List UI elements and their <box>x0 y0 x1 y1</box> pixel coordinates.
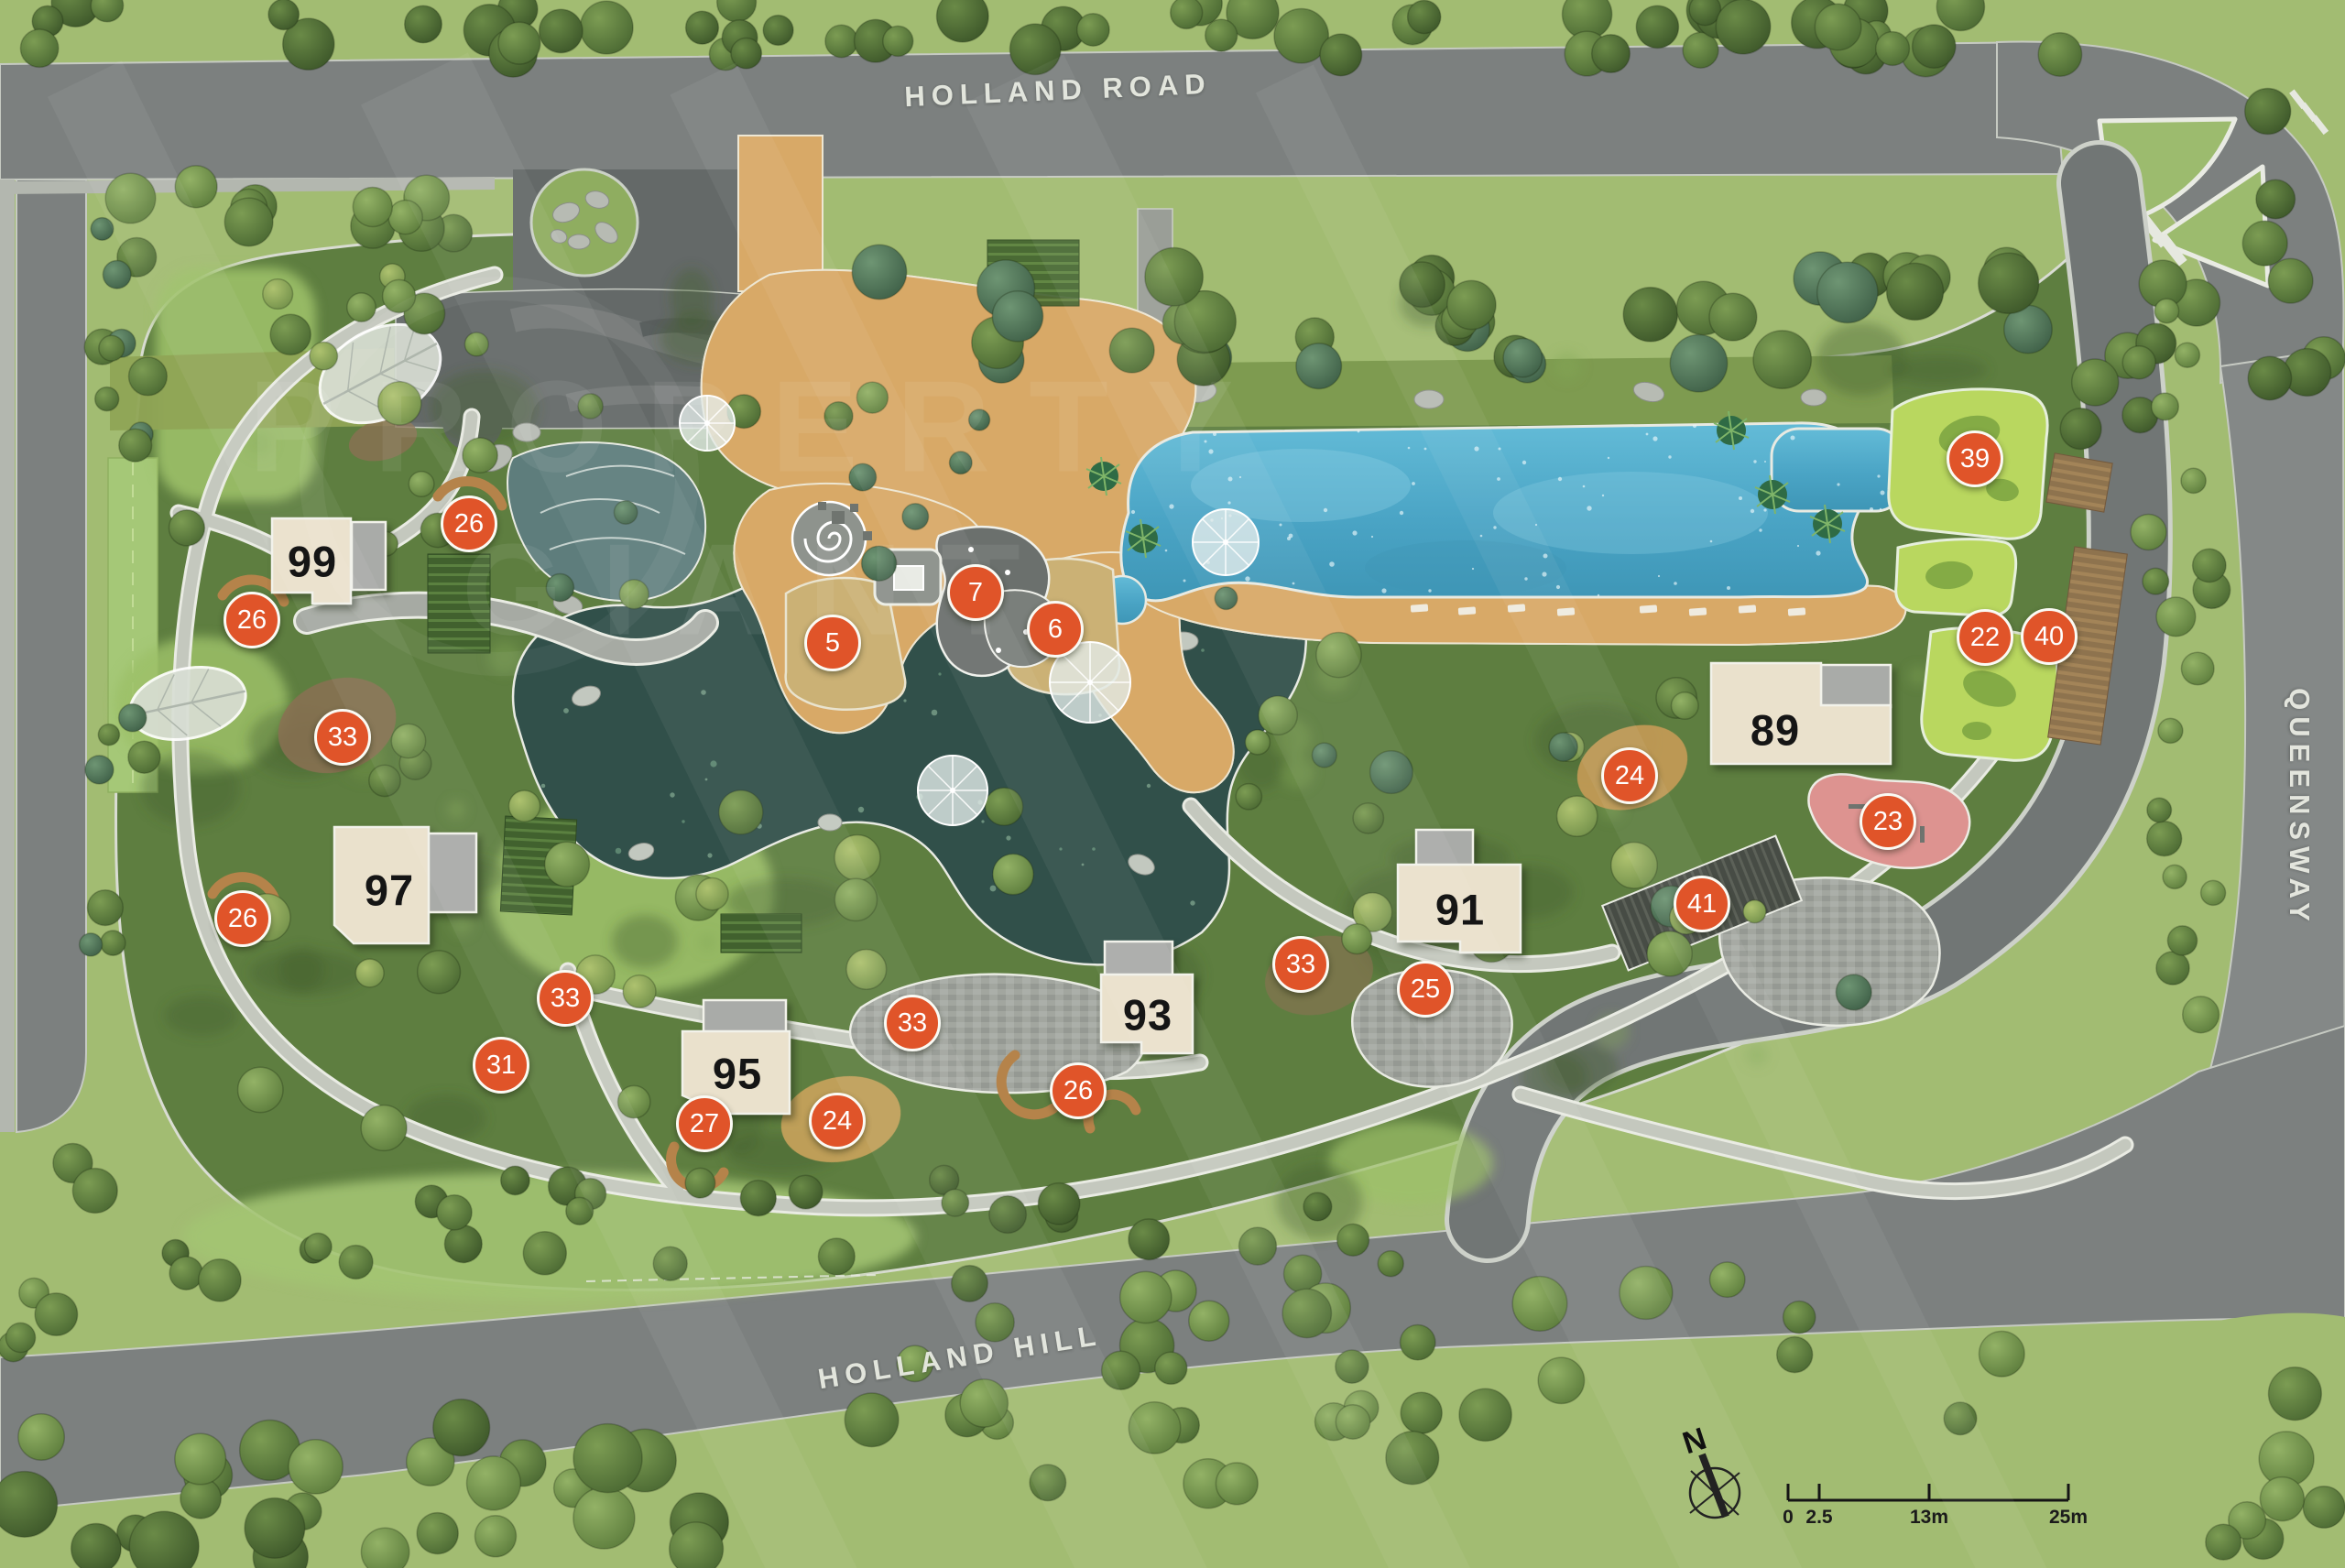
tree <box>1980 1332 2025 1377</box>
pool-sparkle <box>1797 545 1799 547</box>
tree <box>1710 1262 1745 1297</box>
tree <box>5 1323 35 1352</box>
legend-marker-number: 31 <box>486 1051 516 1081</box>
tree <box>238 1067 283 1112</box>
shrub-bed <box>612 915 678 968</box>
legend-marker-33: 33 <box>884 995 941 1051</box>
pool-sparkle <box>1764 461 1766 463</box>
pool-sparkle <box>1558 477 1562 481</box>
tree <box>1623 288 1677 342</box>
legend-marker-41: 41 <box>1674 876 1730 932</box>
tree <box>268 0 299 30</box>
pond-speckle <box>858 807 864 812</box>
tree <box>1753 331 1811 388</box>
tree <box>2303 1486 2345 1529</box>
legend-marker-number: 33 <box>898 1008 927 1039</box>
tree <box>353 188 392 227</box>
legend-marker-26: 26 <box>1050 1062 1107 1119</box>
tree <box>437 1195 472 1230</box>
tree <box>2147 798 2172 822</box>
tree <box>444 1225 482 1263</box>
pool-sparkle <box>1646 433 1649 436</box>
tree <box>405 5 442 43</box>
legend-marker-22: 22 <box>1957 609 2013 666</box>
legend-marker-number: 7 <box>968 578 983 608</box>
building-label-89: 89 <box>1751 705 1800 756</box>
tree <box>1205 19 1238 51</box>
legend-marker-27: 27 <box>676 1095 733 1152</box>
tree <box>71 1524 121 1568</box>
tree <box>245 1498 305 1559</box>
tree <box>1077 14 1109 46</box>
scale-label-13m: 13m <box>1910 1507 1948 1529</box>
tree <box>20 29 58 67</box>
scale-label-2.5: 2.5 <box>1805 1507 1832 1529</box>
tree <box>475 1516 517 1557</box>
pool-sparkle <box>1598 594 1599 596</box>
pool-sparkle <box>1753 460 1756 463</box>
tree <box>883 26 913 56</box>
tree <box>119 704 147 732</box>
tree <box>818 1238 855 1275</box>
pool-sparkle <box>1837 483 1839 485</box>
pond-speckle <box>682 820 684 822</box>
tree <box>523 1232 566 1275</box>
tree <box>1120 1271 1172 1323</box>
tree <box>2143 568 2169 594</box>
tree <box>95 387 119 411</box>
tree <box>1189 1301 1229 1341</box>
pool-sparkle <box>1358 430 1360 433</box>
tree <box>1401 1392 1442 1433</box>
tree <box>1672 692 1699 720</box>
legend-marker-number: 26 <box>237 605 267 636</box>
tree <box>224 198 273 246</box>
pool-sparkle <box>1408 447 1411 450</box>
tree <box>1401 1325 1435 1360</box>
tree <box>498 22 540 64</box>
tree <box>545 842 590 887</box>
tree <box>2260 1477 2304 1521</box>
tree <box>993 854 1033 894</box>
legend-marker-number: 24 <box>1615 761 1644 791</box>
tree <box>789 1175 823 1209</box>
legend-marker-33: 33 <box>1272 936 1329 993</box>
tree <box>2269 1367 2322 1421</box>
tree <box>1876 32 1910 66</box>
tree <box>2152 393 2179 420</box>
tree <box>1815 4 1861 50</box>
pool-sparkle <box>1472 568 1474 570</box>
legend-marker-number: 33 <box>328 723 357 753</box>
tree <box>1503 339 1542 377</box>
pool-sparkle <box>1428 589 1431 592</box>
tree <box>1777 1337 1813 1373</box>
tree <box>169 510 204 546</box>
legend-marker-6: 6 <box>1027 601 1084 658</box>
pool-sparkle <box>1602 495 1604 496</box>
tree <box>740 1181 776 1216</box>
tree <box>1378 1251 1403 1277</box>
tree <box>103 261 131 289</box>
pool-sparkle <box>1412 482 1415 485</box>
legend-marker-25: 25 <box>1397 961 1454 1018</box>
tree <box>670 1522 724 1568</box>
legend-marker-26: 26 <box>224 592 280 648</box>
pond-speckle <box>1190 900 1194 905</box>
tree <box>85 756 114 784</box>
tree <box>1320 34 1362 76</box>
pool-sparkle <box>1608 457 1609 459</box>
pool-sparkle <box>1870 507 1873 511</box>
tree <box>2154 299 2178 322</box>
legend-marker-number: 26 <box>228 904 257 934</box>
tree <box>305 1233 333 1260</box>
building-label-93: 93 <box>1123 990 1172 1040</box>
legend-marker-number: 33 <box>1286 950 1315 980</box>
tree <box>18 1414 64 1460</box>
legend-marker-33: 33 <box>314 709 371 766</box>
pool-sparkle <box>1880 508 1881 510</box>
tree <box>2156 952 2189 985</box>
building-label-97: 97 <box>365 866 414 916</box>
glass-dome <box>918 756 987 825</box>
legend-marker-number: 26 <box>454 509 484 539</box>
tree <box>339 1246 373 1279</box>
tree <box>1447 280 1496 329</box>
tree <box>1538 1357 1584 1403</box>
tree <box>199 1259 241 1301</box>
tree <box>2256 180 2296 219</box>
tree <box>2193 549 2226 582</box>
legend-marker-26: 26 <box>214 890 271 947</box>
tree <box>128 741 160 773</box>
tree <box>1636 5 1678 48</box>
pool-sparkle <box>1400 511 1403 515</box>
tree <box>1296 343 1342 389</box>
tree <box>361 1105 407 1151</box>
pool-sparkle <box>1658 575 1660 577</box>
pond-speckle <box>563 708 569 713</box>
tree <box>2038 33 2081 76</box>
building-label-95: 95 <box>713 1049 762 1099</box>
pool-sparkle <box>1668 455 1671 458</box>
tree <box>1716 0 1771 54</box>
tree <box>88 890 124 926</box>
legend-marker-23: 23 <box>1860 793 1916 850</box>
tree <box>2060 408 2101 450</box>
pool-sparkle <box>1352 530 1357 535</box>
tree <box>1337 1224 1369 1256</box>
tree <box>2122 346 2155 379</box>
legend-marker-24: 24 <box>809 1093 866 1149</box>
legend-marker-number: 23 <box>1873 807 1903 837</box>
tree <box>2147 822 2182 856</box>
tree <box>2156 597 2196 637</box>
tree <box>2131 515 2166 550</box>
tree <box>1979 253 2039 313</box>
watermark-text: PROPERTY GIANT <box>248 346 1271 671</box>
tree <box>1038 1183 1079 1225</box>
pool-sparkle <box>1329 561 1335 567</box>
shrub-bed <box>1816 322 1906 396</box>
legend-marker-40: 40 <box>2021 608 2078 665</box>
legend-marker-number: 33 <box>551 984 580 1014</box>
tree <box>1171 0 1203 28</box>
pond-speckle <box>670 792 674 797</box>
tree <box>1709 293 1757 341</box>
pool-sparkle <box>1759 528 1761 531</box>
grass-tuft <box>698 933 716 952</box>
tree <box>418 951 461 994</box>
site-plan-map: PROPERTY GIANT HOLLAND ROAD QUEENSWAY HO… <box>0 0 2345 1568</box>
pool-sparkle <box>1751 509 1754 513</box>
tree <box>1887 263 1944 320</box>
tree <box>580 1 633 54</box>
building-label-91: 91 <box>1435 885 1485 935</box>
pool-sparkle <box>1587 506 1591 510</box>
tree <box>99 335 125 361</box>
tree <box>347 293 376 321</box>
legend-marker-number: 26 <box>1063 1076 1093 1106</box>
pool-sparkle <box>1371 536 1373 538</box>
tree <box>0 1472 58 1538</box>
legend-marker-number: 27 <box>690 1109 719 1139</box>
tree <box>119 429 152 462</box>
legend-marker-number: 41 <box>1687 889 1717 920</box>
tree <box>2268 258 2313 303</box>
pool-sparkle <box>1881 491 1885 495</box>
pond-speckle <box>1147 784 1151 788</box>
pool-sparkle <box>1424 448 1427 451</box>
tree <box>1670 335 1727 392</box>
tree <box>686 11 719 44</box>
tree <box>361 1528 409 1568</box>
tree <box>35 1293 77 1335</box>
tree <box>685 1168 715 1198</box>
building-label-99: 99 <box>288 537 337 587</box>
tree <box>1783 1301 1816 1334</box>
pool-sparkle <box>1324 508 1327 512</box>
tree <box>573 1424 642 1493</box>
tree <box>623 975 656 1008</box>
tree <box>2072 359 2119 406</box>
tree <box>696 878 728 910</box>
tree <box>1557 796 1598 836</box>
tree <box>169 1257 202 1290</box>
legend-marker-26: 26 <box>441 495 497 552</box>
tree <box>763 16 793 46</box>
pool-sparkle <box>1674 582 1677 585</box>
tree <box>355 959 384 987</box>
tree <box>1743 900 1766 923</box>
tree <box>129 357 168 396</box>
tree <box>1836 975 1871 1010</box>
pond-speckle <box>903 699 906 702</box>
tree <box>573 1487 635 1549</box>
tree <box>1245 730 1270 755</box>
tree <box>289 1440 343 1494</box>
tree <box>2242 221 2287 266</box>
pool-sparkle <box>1727 586 1730 590</box>
tree <box>1592 35 1631 73</box>
tree <box>852 245 906 299</box>
tree <box>417 1513 458 1554</box>
tree <box>467 1456 521 1510</box>
tree <box>1342 924 1372 954</box>
pool-sparkle <box>1583 485 1586 488</box>
legend-marker-number: 40 <box>2034 622 2064 652</box>
tree <box>175 1433 226 1485</box>
pool-sparkle <box>1816 550 1820 555</box>
legend-marker-number: 6 <box>1048 615 1063 645</box>
tree <box>80 933 103 956</box>
tree <box>1155 1352 1187 1384</box>
pond-speckle <box>932 710 938 716</box>
tree <box>992 291 1042 342</box>
tree <box>1303 1192 1332 1221</box>
legend-marker-number: 25 <box>1411 975 1440 1005</box>
tree <box>2245 89 2291 135</box>
shrub-bed <box>165 996 238 1036</box>
grass-tuft <box>1553 352 1582 381</box>
tree <box>72 1169 117 1214</box>
tree <box>825 25 857 57</box>
tree <box>2158 718 2183 743</box>
scale-label-25m: 25m <box>2049 1507 2088 1529</box>
pool-sparkle <box>1877 474 1880 477</box>
pool-sparkle <box>1522 461 1526 464</box>
legend-marker-5: 5 <box>804 615 861 671</box>
tree <box>1459 1388 1511 1441</box>
tree <box>845 1393 899 1447</box>
shrub-bed <box>278 947 324 993</box>
tree <box>2183 996 2220 1033</box>
pond-speckle <box>707 853 712 857</box>
legend-marker-7: 7 <box>947 564 1004 621</box>
pool-sparkle <box>1763 508 1766 511</box>
road-label-queensway: QUEENSWAY <box>2283 688 2316 928</box>
tree <box>501 1166 529 1194</box>
tree <box>2206 1524 2241 1560</box>
tree <box>2181 468 2206 493</box>
pond-speckle <box>541 784 546 789</box>
pond-speckle <box>1006 835 1010 840</box>
tree <box>101 931 125 955</box>
tree <box>98 724 119 746</box>
spa-pool <box>1772 429 1903 511</box>
pond-speckle <box>990 886 997 892</box>
pool-sparkle <box>1739 496 1742 500</box>
legend-marker-33: 33 <box>537 970 594 1027</box>
legend-marker-31: 31 <box>473 1037 529 1094</box>
legend-marker-number: 39 <box>1960 444 1990 474</box>
tree <box>263 279 293 310</box>
tree <box>1408 0 1441 33</box>
tree <box>1817 262 1878 322</box>
pool-sparkle <box>1710 540 1713 543</box>
legend-marker-24: 24 <box>1601 747 1658 804</box>
pond-speckle <box>938 672 941 675</box>
tree <box>1216 1463 1258 1505</box>
pool-sparkle <box>1652 436 1657 441</box>
pool-sparkle <box>1381 588 1386 593</box>
tree <box>433 1399 490 1456</box>
tree <box>1913 25 1956 68</box>
pool-sparkle <box>1791 436 1795 441</box>
legend-marker-number: 5 <box>825 628 840 659</box>
tree <box>1129 1219 1170 1260</box>
tree <box>509 790 540 822</box>
scale-label-0: 0 <box>1783 1507 1794 1529</box>
tree <box>2248 356 2291 399</box>
tree <box>1236 784 1261 810</box>
tree <box>2181 652 2214 685</box>
tree <box>2163 865 2187 888</box>
pond-speckle <box>981 820 984 822</box>
legend-marker-number: 24 <box>823 1106 852 1137</box>
pond-speckle <box>616 848 622 855</box>
legend-marker-number: 22 <box>1970 623 2000 653</box>
tree <box>2201 880 2226 905</box>
map-artwork <box>0 0 2345 1568</box>
tree <box>2167 926 2197 955</box>
legend-marker-39: 39 <box>1947 430 2003 487</box>
tree <box>540 9 583 52</box>
tree <box>2175 343 2199 367</box>
